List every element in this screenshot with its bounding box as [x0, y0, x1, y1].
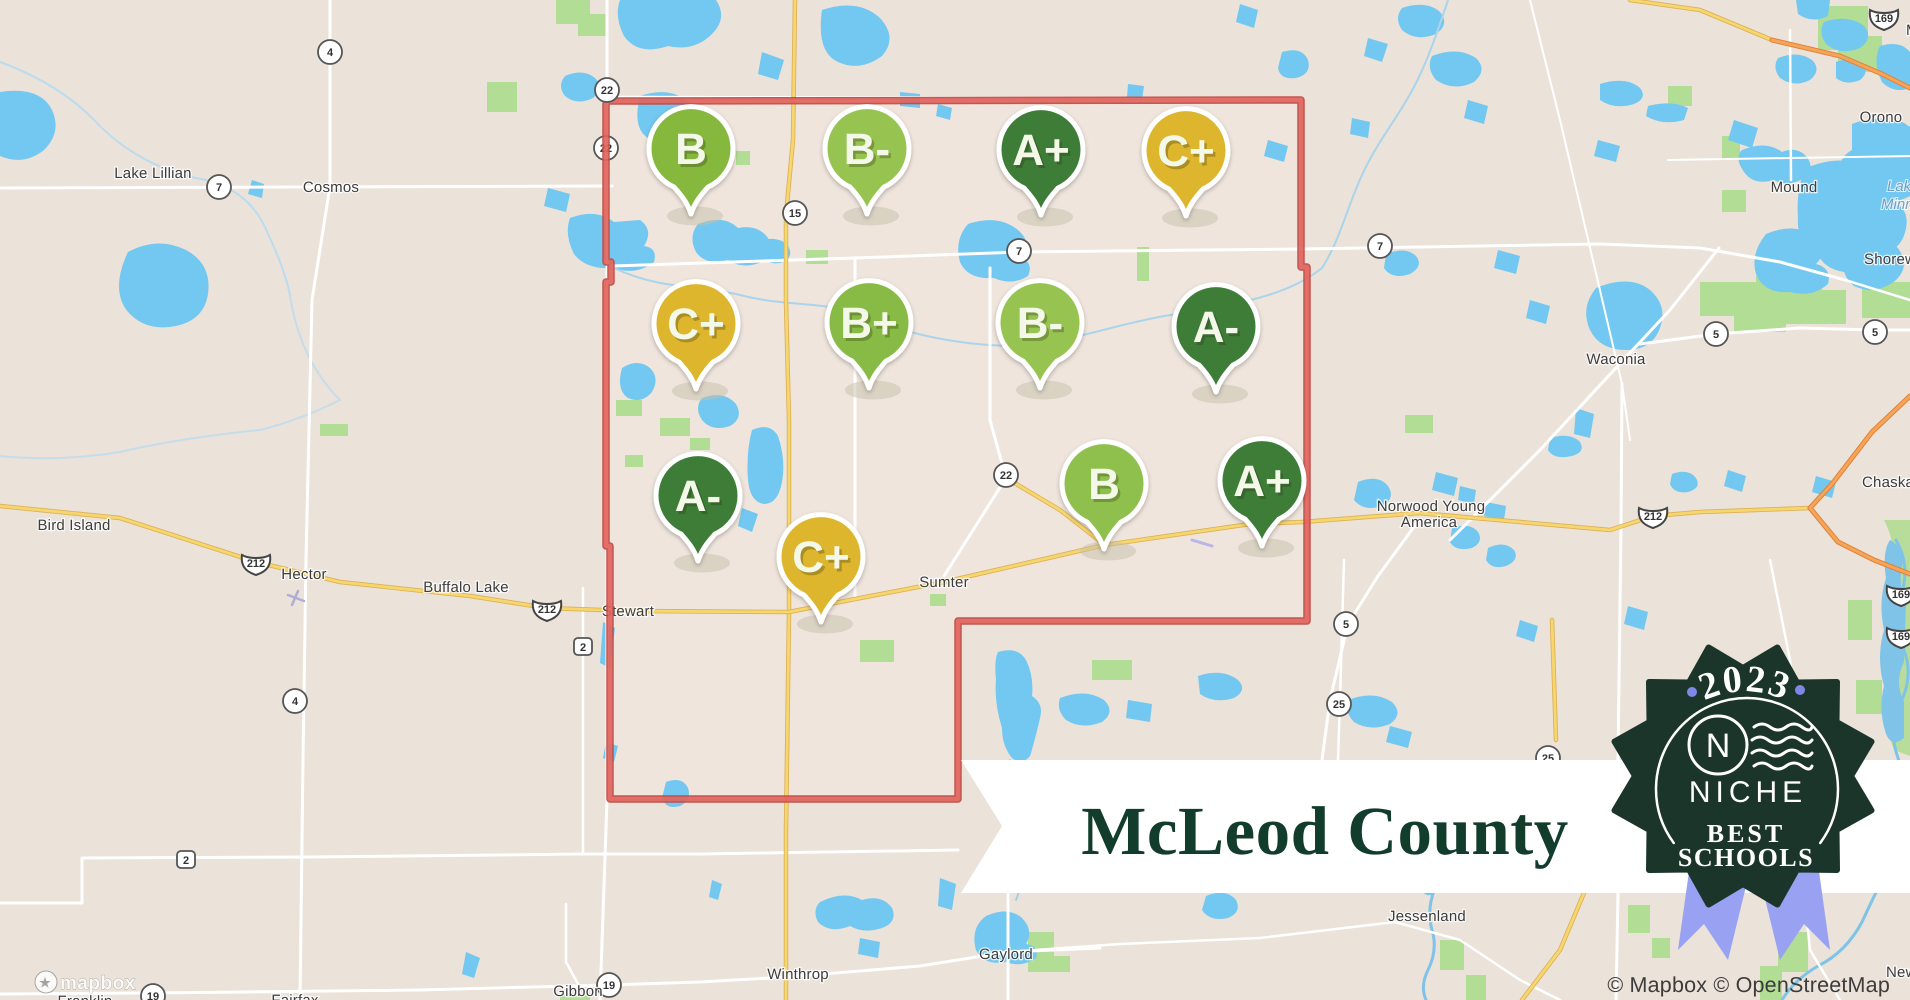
- svg-text:Chaska: Chaska: [1862, 474, 1910, 491]
- svg-text:America: America: [1401, 514, 1458, 531]
- svg-text:M: M: [1906, 22, 1910, 39]
- svg-text:7: 7: [216, 182, 222, 194]
- svg-text:A-: A-: [675, 472, 721, 521]
- svg-text:C+: C+: [1157, 127, 1214, 176]
- svg-text:C+: C+: [667, 300, 724, 349]
- svg-text:★: ★: [39, 975, 51, 990]
- svg-text:Shorewood: Shorewood: [1864, 251, 1910, 268]
- svg-text:NICHE: NICHE: [1689, 776, 1807, 809]
- svg-text:N: N: [1706, 727, 1731, 765]
- svg-text:22: 22: [1000, 470, 1012, 482]
- svg-text:Orono: Orono: [1860, 109, 1903, 126]
- svg-text:Minnetonka: Minnetonka: [1881, 196, 1910, 213]
- svg-text:B-: B-: [1017, 299, 1063, 348]
- svg-text:15: 15: [789, 208, 801, 220]
- svg-text:Cosmos: Cosmos: [303, 179, 359, 196]
- svg-text:Franklin: Franklin: [58, 993, 113, 1000]
- svg-text:Gibbon: Gibbon: [553, 983, 603, 1000]
- svg-text:2: 2: [580, 642, 586, 654]
- svg-text:7: 7: [1016, 246, 1022, 258]
- svg-text:B: B: [675, 125, 707, 174]
- svg-text:169: 169: [1875, 13, 1893, 25]
- svg-text:A+: A+: [1012, 126, 1069, 175]
- svg-text:Lake: Lake: [1887, 178, 1910, 195]
- svg-text:19: 19: [147, 991, 159, 1000]
- svg-text:212: 212: [1644, 511, 1662, 523]
- svg-text:B-: B-: [844, 125, 890, 174]
- svg-text:5: 5: [1872, 327, 1878, 339]
- svg-text:7: 7: [1377, 241, 1383, 253]
- svg-text:SCHOOLS: SCHOOLS: [1678, 843, 1814, 872]
- svg-text:Norwood Young: Norwood Young: [1377, 498, 1486, 515]
- svg-text:Mound: Mound: [1771, 179, 1818, 196]
- svg-text:Waconia: Waconia: [1586, 351, 1646, 368]
- svg-text:Jessenland: Jessenland: [1388, 908, 1466, 925]
- svg-text:B: B: [1088, 460, 1120, 509]
- svg-text:A-: A-: [1193, 303, 1239, 352]
- svg-text:mapbox: mapbox: [60, 973, 136, 994]
- svg-text:Winthrop: Winthrop: [767, 966, 829, 983]
- svg-text:Gaylord: Gaylord: [979, 946, 1033, 963]
- svg-text:McLeod County: McLeod County: [1081, 793, 1569, 869]
- svg-text:4: 4: [327, 47, 334, 59]
- svg-text:25: 25: [1333, 699, 1345, 711]
- svg-text:© Mapbox © OpenStreetMap: © Mapbox © OpenStreetMap: [1607, 973, 1890, 997]
- svg-text:A+: A+: [1233, 457, 1290, 506]
- svg-text:169: 169: [1892, 631, 1910, 643]
- svg-text:Buffalo Lake: Buffalo Lake: [423, 579, 509, 596]
- svg-text:4: 4: [292, 696, 299, 708]
- svg-text:Fairfax: Fairfax: [271, 992, 319, 1000]
- svg-text:22: 22: [601, 85, 613, 97]
- svg-text:Bird Island: Bird Island: [37, 517, 110, 534]
- svg-text:212: 212: [538, 604, 556, 616]
- svg-text:2: 2: [183, 855, 189, 867]
- svg-text:Lake Lillian: Lake Lillian: [114, 165, 191, 182]
- svg-text:19: 19: [603, 980, 615, 992]
- svg-text:B+: B+: [840, 299, 897, 348]
- svg-text:212: 212: [247, 558, 265, 570]
- svg-text:5: 5: [1343, 619, 1349, 631]
- svg-text:5: 5: [1713, 329, 1719, 341]
- svg-text:Hector: Hector: [281, 566, 326, 583]
- svg-text:169: 169: [1892, 589, 1910, 601]
- svg-text:Sumter: Sumter: [919, 574, 969, 591]
- svg-text:C+: C+: [792, 533, 849, 582]
